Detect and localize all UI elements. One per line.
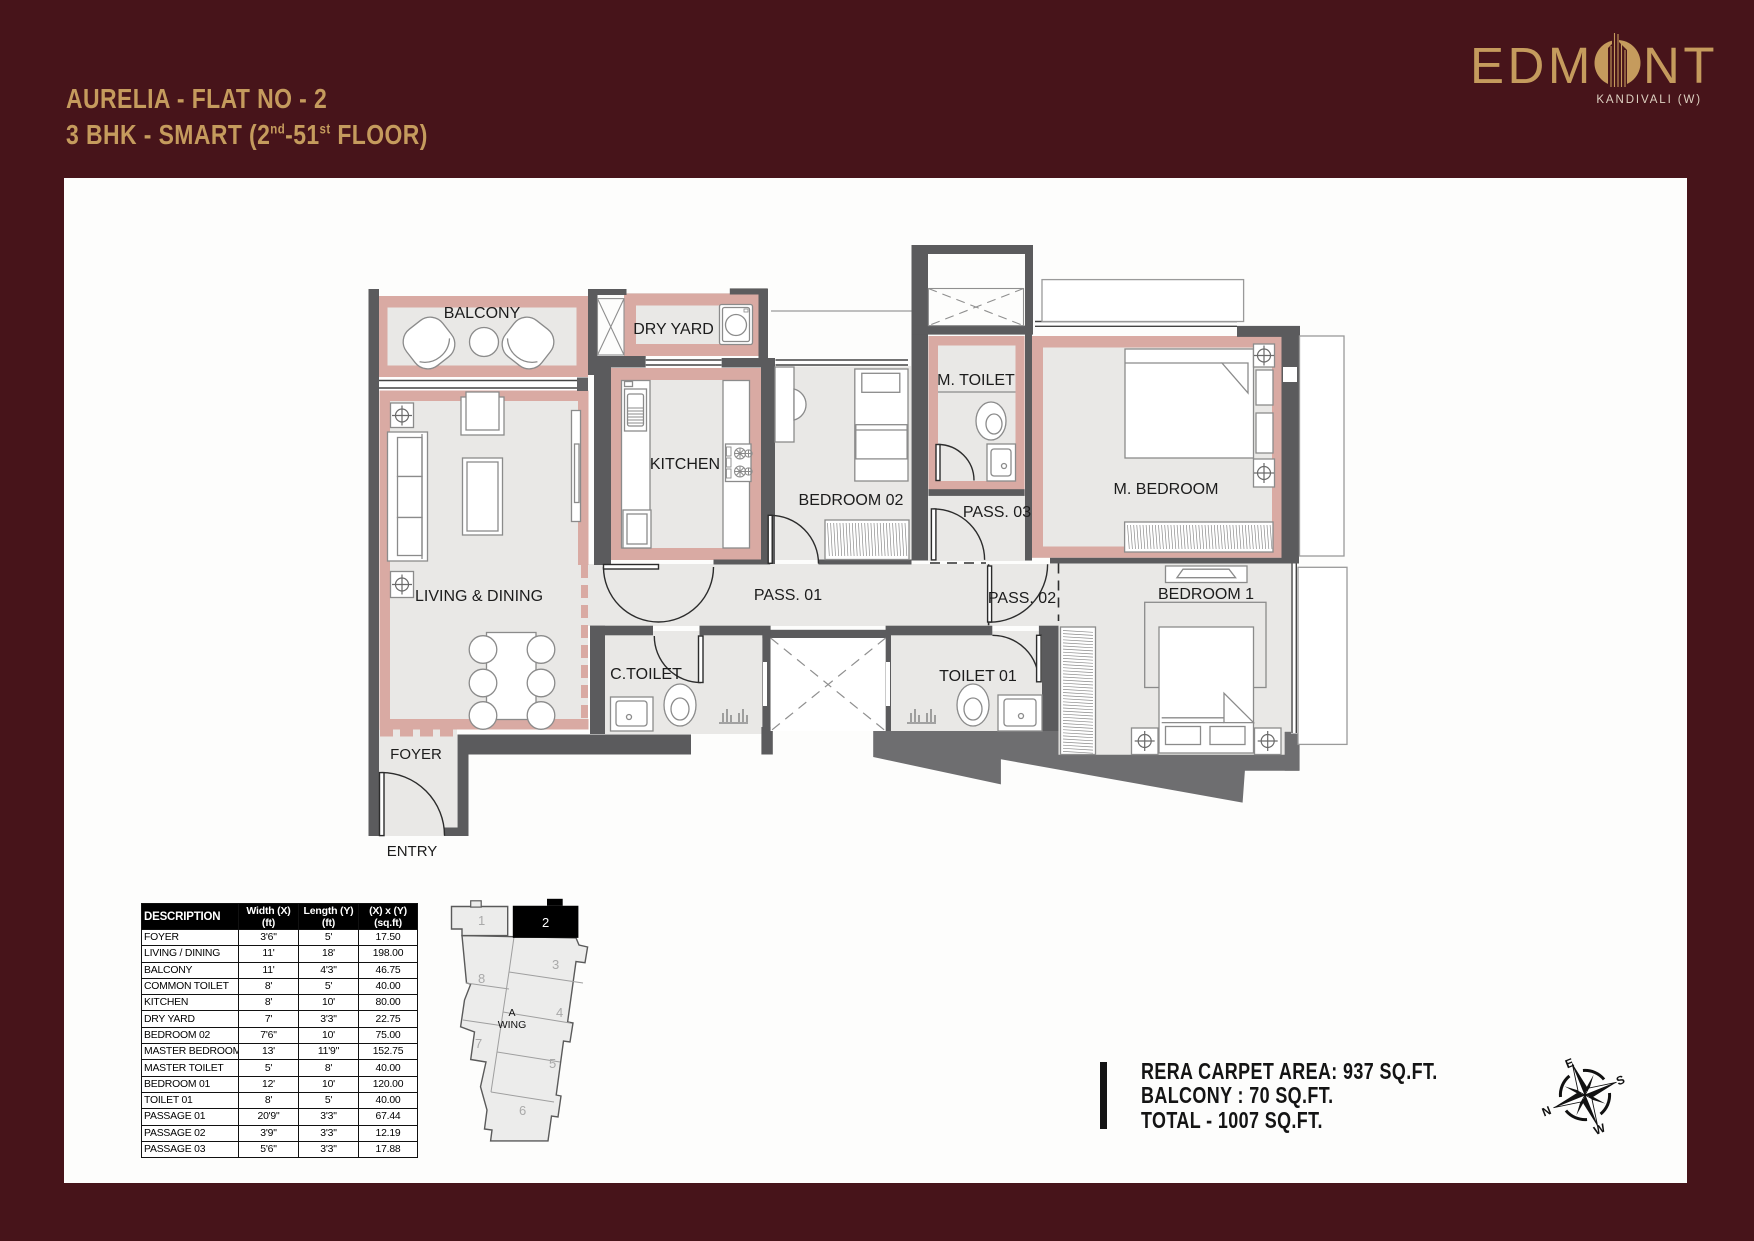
- svg-text:PASS. 02: PASS. 02: [988, 590, 1056, 607]
- svg-text:S: S: [1614, 1072, 1627, 1088]
- svg-text:4: 4: [556, 1005, 563, 1020]
- svg-text:BEDROOM 02: BEDROOM 02: [799, 492, 904, 509]
- svg-text:C.TOILET: C.TOILET: [610, 666, 682, 683]
- svg-text:EDM: EDM: [1470, 37, 1594, 94]
- svg-text:LIVING & DINING: LIVING & DINING: [415, 588, 543, 605]
- svg-text:DRY YARD: DRY YARD: [633, 321, 714, 338]
- svg-text:5: 5: [549, 1056, 556, 1071]
- svg-text:ENTRY: ENTRY: [387, 843, 438, 860]
- svg-text:FOYER: FOYER: [390, 746, 442, 763]
- svg-text:N: N: [1540, 1103, 1553, 1119]
- svg-text:W: W: [1592, 1120, 1608, 1137]
- svg-text:A: A: [508, 1007, 515, 1019]
- svg-text:KITCHEN: KITCHEN: [650, 456, 720, 473]
- svg-text:3: 3: [552, 957, 559, 972]
- svg-text:1: 1: [478, 913, 485, 928]
- svg-text:NT: NT: [1643, 37, 1718, 94]
- svg-text:PASS. 03: PASS. 03: [963, 504, 1031, 521]
- svg-text:8: 8: [478, 971, 485, 986]
- svg-text:WING: WING: [498, 1019, 527, 1031]
- svg-text:PASS. 01: PASS. 01: [754, 587, 822, 604]
- svg-text:2: 2: [542, 915, 549, 930]
- svg-text:BEDROOM 1: BEDROOM 1: [1158, 586, 1254, 603]
- svg-text:KANDIVALI (W): KANDIVALI (W): [1596, 94, 1702, 106]
- svg-text:M. BEDROOM: M. BEDROOM: [1114, 481, 1219, 498]
- svg-text:TOILET 01: TOILET 01: [939, 668, 1017, 685]
- svg-text:BALCONY: BALCONY: [444, 305, 521, 322]
- svg-text:M. TOILET: M. TOILET: [937, 372, 1015, 389]
- svg-text:E: E: [1563, 1055, 1576, 1071]
- svg-text:6: 6: [519, 1103, 526, 1118]
- svg-text:7: 7: [475, 1036, 482, 1051]
